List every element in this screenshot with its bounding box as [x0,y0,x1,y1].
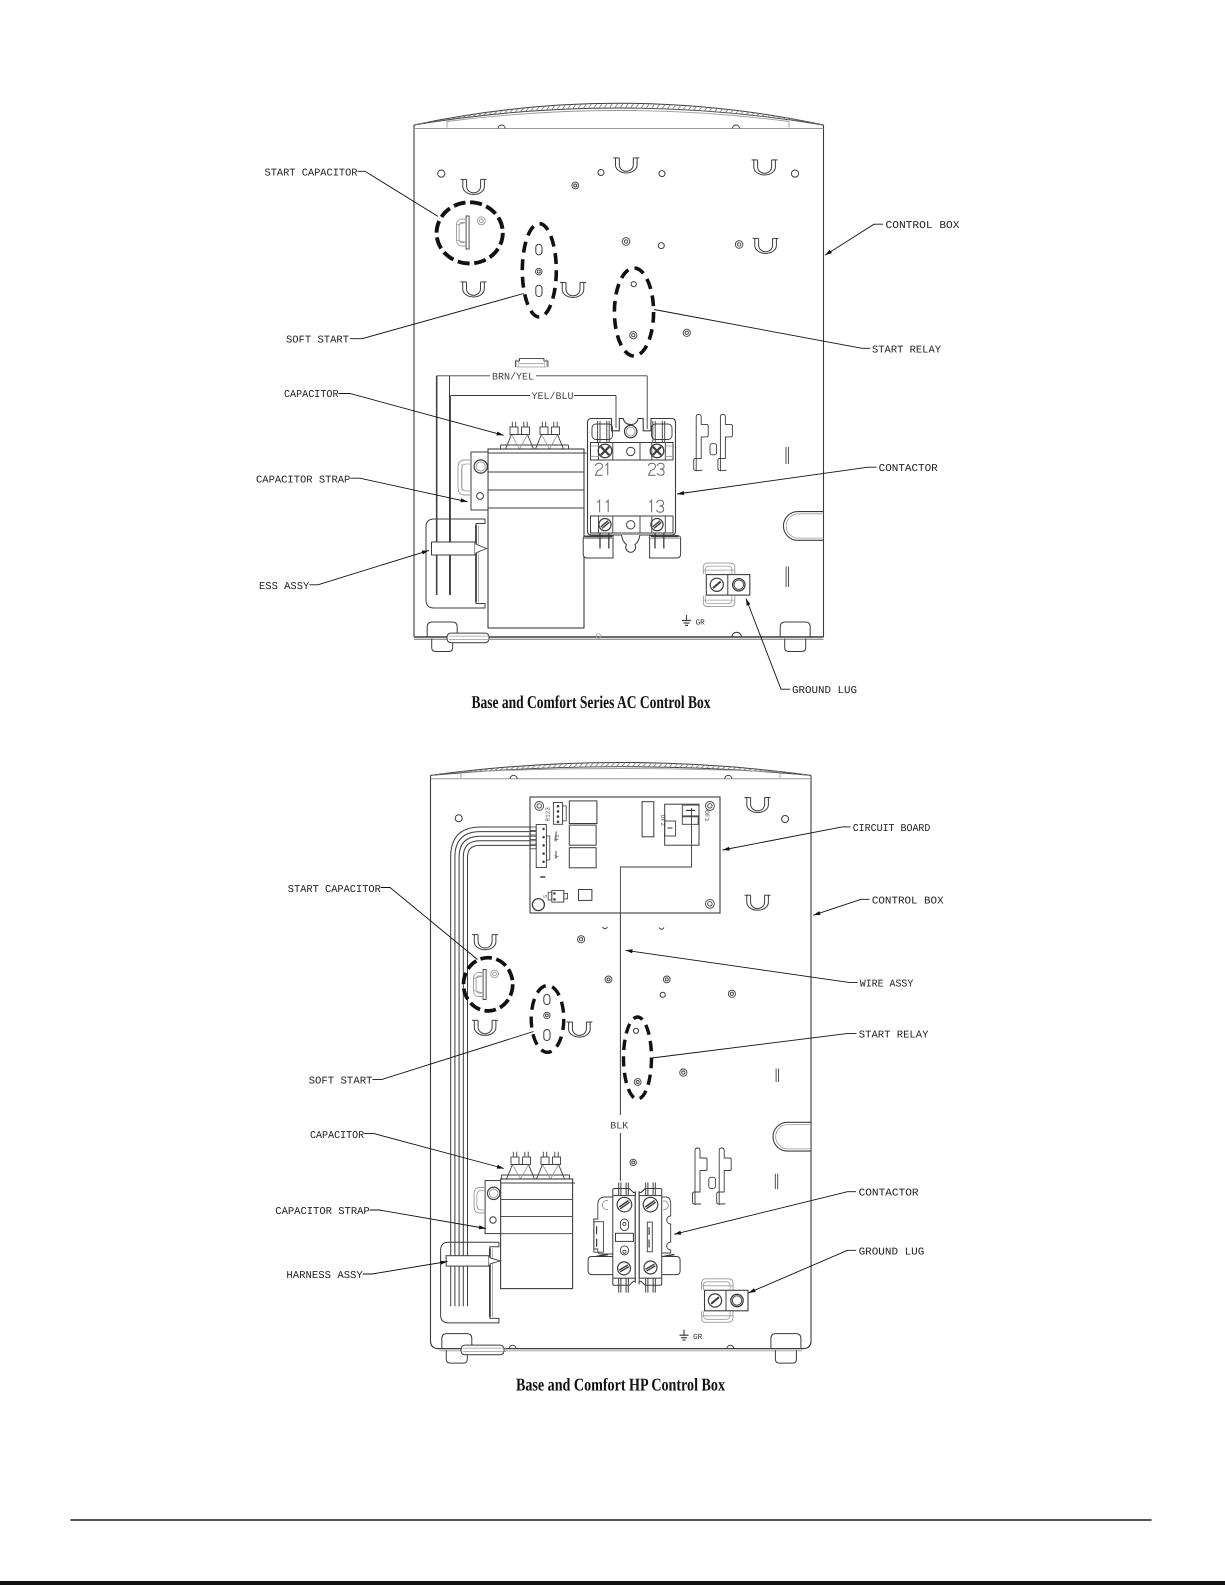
svg-text:CONTACTOR: CONTACTOR [879,463,938,475]
svg-text:R123: R123 [545,807,552,822]
svg-text:CAPACITOR: CAPACITOR [284,389,339,401]
svg-text:Y: Y [554,855,561,859]
svg-text:T1: T1 [554,834,561,842]
svg-text:Base and Comfort Series AC Con: Base and Comfort Series AC Control Box [472,692,711,712]
svg-text:CONTROL BOX: CONTROL BOX [886,220,961,232]
svg-text:GR: GR [696,619,706,628]
svg-text:START RELAY: START RELAY [859,1029,929,1041]
svg-text:SOFT START: SOFT START [309,1076,373,1088]
svg-text:CONTROL BOX: CONTROL BOX [872,895,944,907]
svg-text:YEL/BLU: YEL/BLU [532,391,574,403]
svg-text:CIRCUIT BOARD: CIRCUIT BOARD [853,823,931,835]
svg-text:ESS ASSY: ESS ASSY [259,581,310,593]
svg-text:START RELAY: START RELAY [872,344,942,356]
svg-text:OF1: OF1 [703,810,710,822]
svg-text:GR: GR [693,1333,703,1342]
svg-text:CAPACITOR: CAPACITOR [310,1130,364,1142]
svg-text:BRN/YEL: BRN/YEL [492,371,534,383]
svg-text:WIRE ASSY: WIRE ASSY [860,978,914,990]
svg-text:HARNESS ASSY: HARNESS ASSY [286,1270,363,1282]
svg-text:GROUND LUG: GROUND LUG [792,685,857,697]
svg-text:CAPACITOR STRAP: CAPACITOR STRAP [256,474,350,486]
svg-text:START CAPACITOR: START CAPACITOR [288,884,381,896]
svg-text:Base and Comfort HP Control Bo: Base and Comfort HP Control Box [516,1375,725,1395]
svg-text:BLK: BLK [610,1122,628,1133]
svg-text:CONTACTOR: CONTACTOR [859,1188,919,1200]
svg-text:START CAPACITOR: START CAPACITOR [265,167,358,179]
svg-text:SOFT START: SOFT START [286,335,349,347]
svg-text:GROUND LUG: GROUND LUG [859,1246,925,1258]
svg-text:CAPACITOR STRAP: CAPACITOR STRAP [275,1206,369,1218]
